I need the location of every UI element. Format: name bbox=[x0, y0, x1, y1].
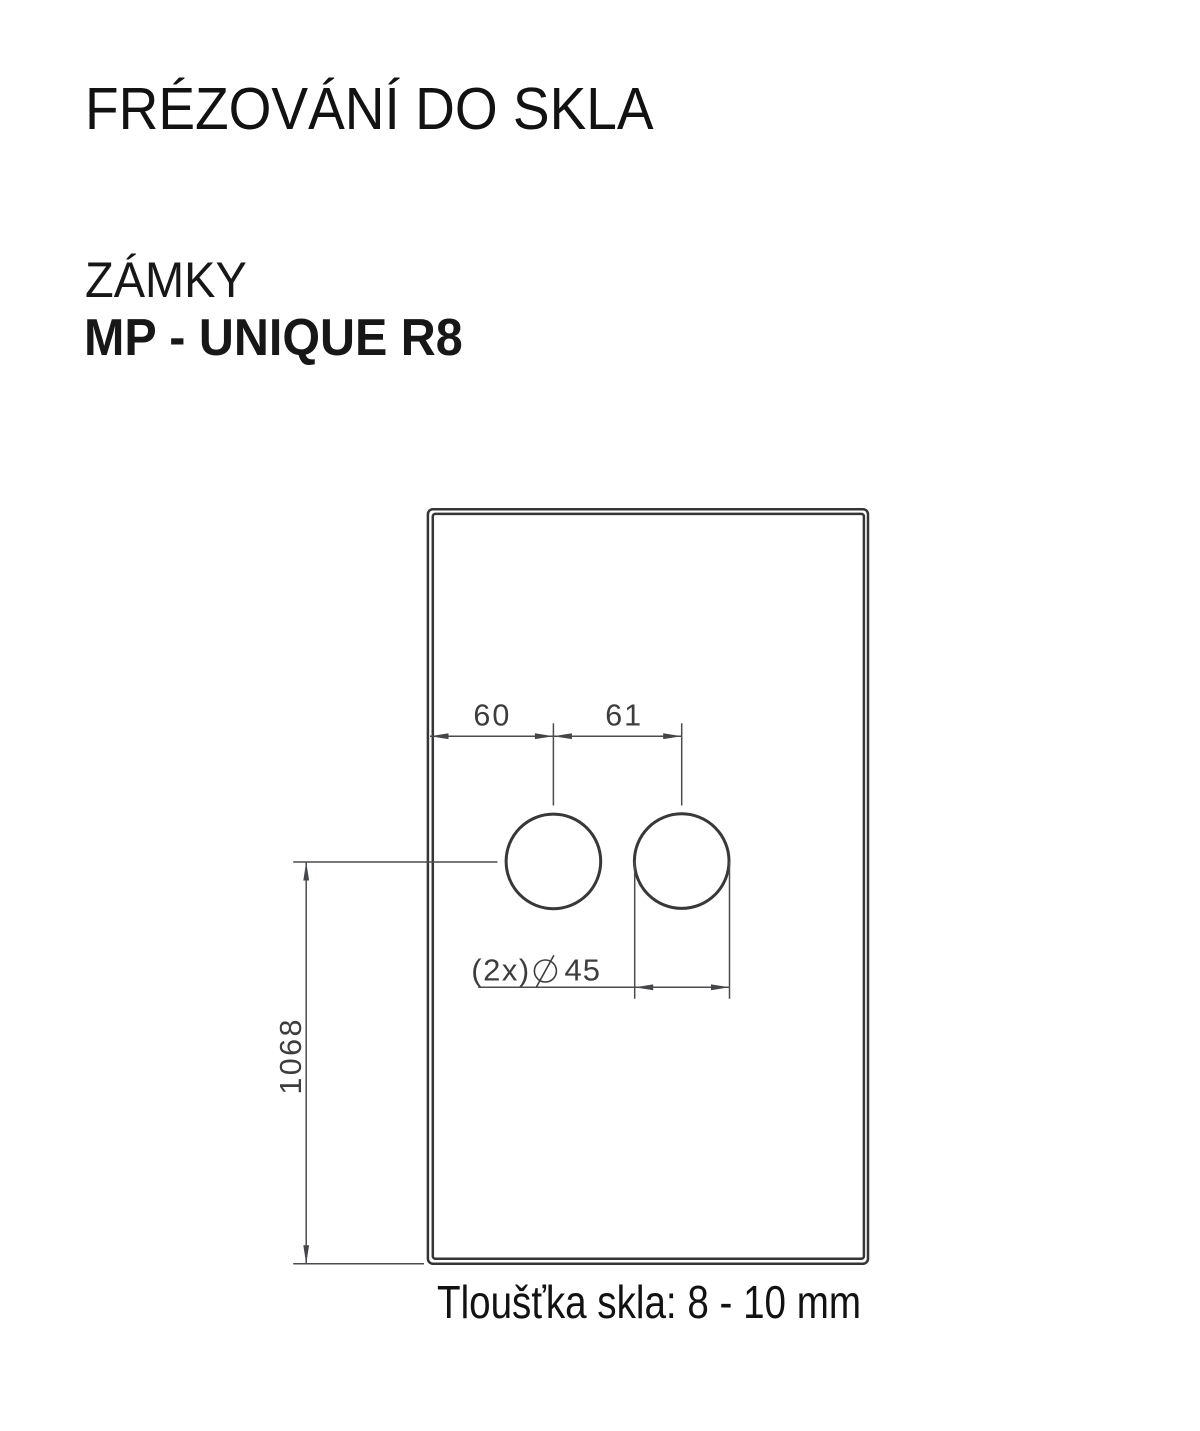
svg-text:(2x): (2x) bbox=[471, 953, 530, 988]
svg-text:1068: 1068 bbox=[274, 1017, 308, 1094]
svg-text:45: 45 bbox=[565, 953, 601, 988]
svg-text:61: 61 bbox=[605, 699, 643, 733]
svg-text:60: 60 bbox=[473, 699, 511, 733]
